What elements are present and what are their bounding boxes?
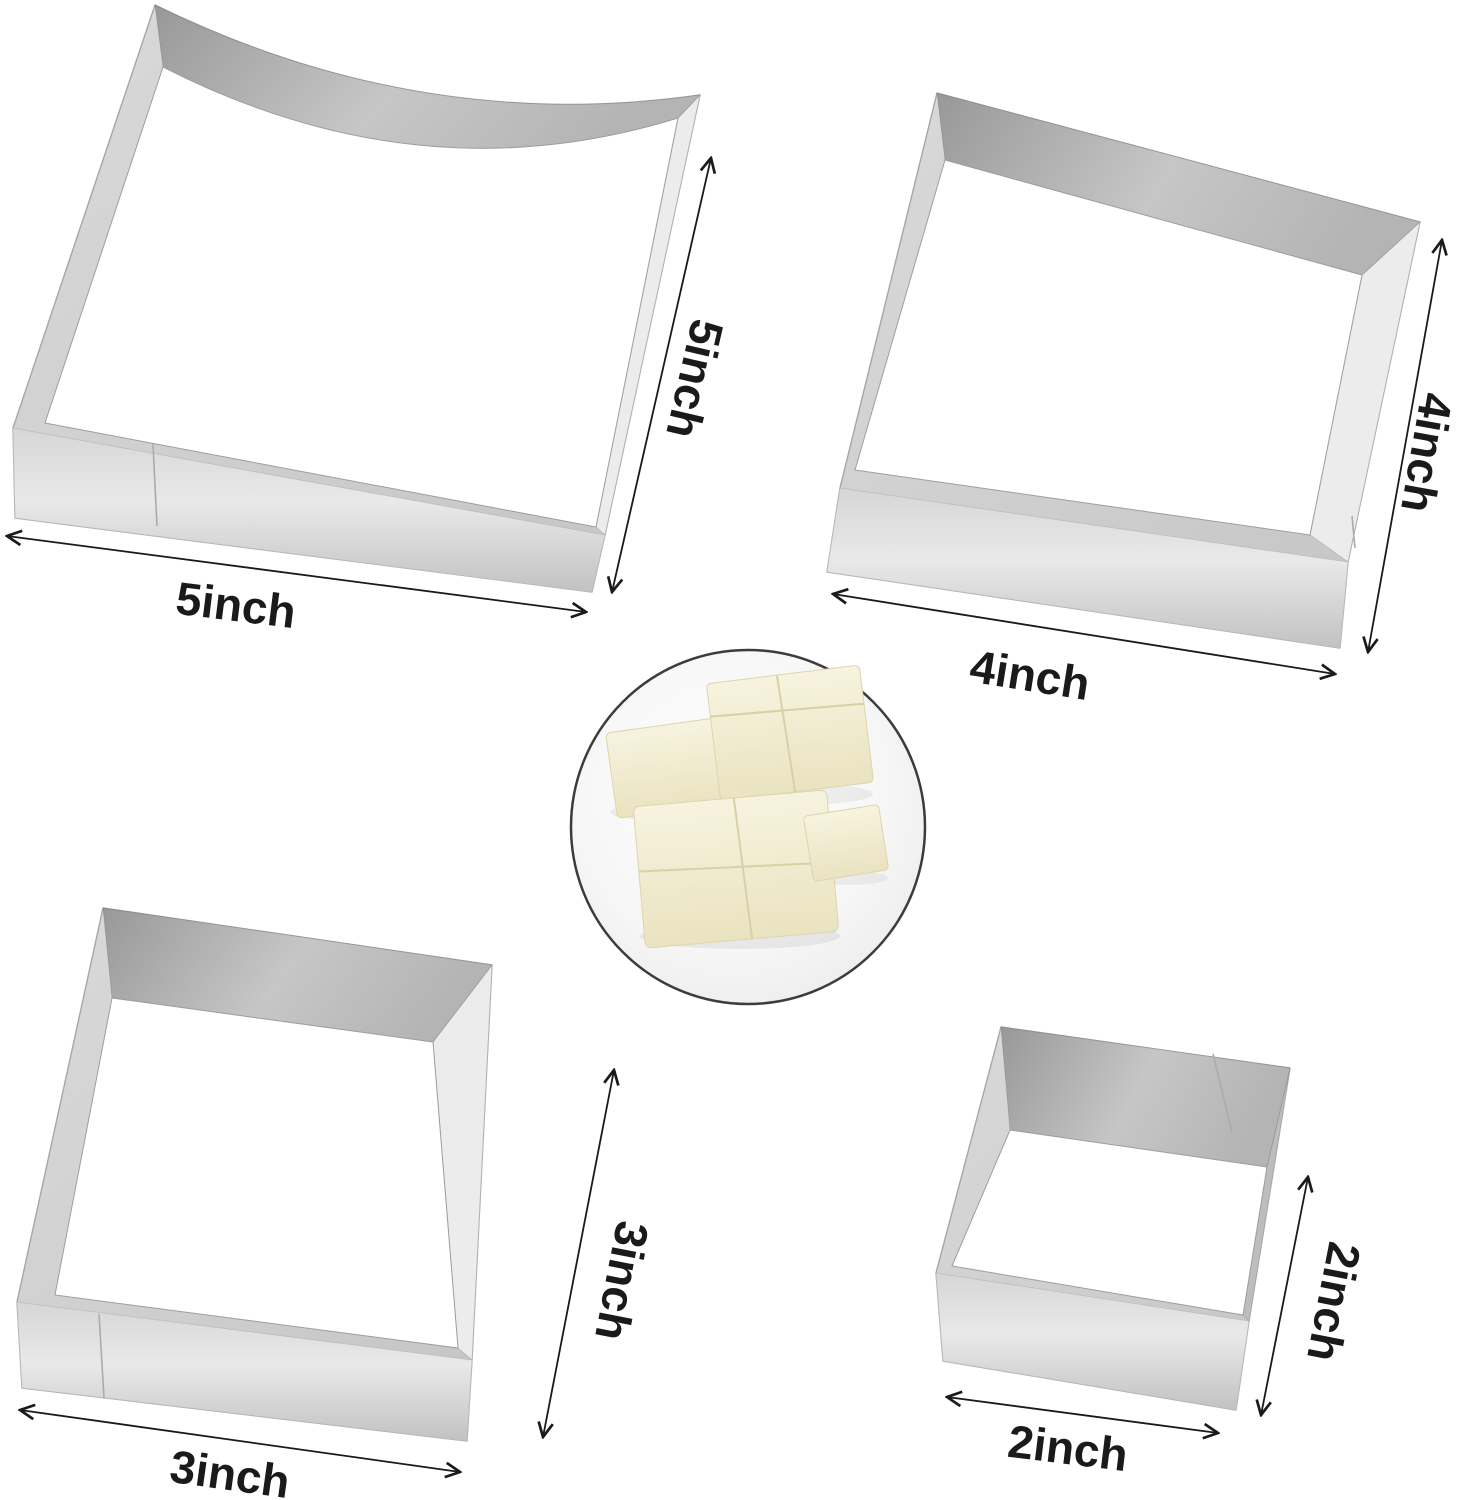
- cutter-3-inch: [17, 908, 492, 1441]
- cutter-4-inch: [827, 93, 1420, 648]
- cutter-3-inch-opening: [55, 998, 458, 1348]
- bread-slice-small-right: [803, 804, 888, 881]
- sample-photo-inset: [571, 650, 925, 1004]
- dimension-arrow-2inch-side: [1261, 1177, 1308, 1415]
- dimension-label-4inch-width: 4inch: [967, 640, 1094, 710]
- bread-slice-medium: [706, 665, 873, 801]
- dimension-label-3inch-side: 3inch: [585, 1217, 659, 1345]
- cutter-5-inch: [13, 5, 700, 592]
- dimension-label-4inch-side: 4inch: [1391, 389, 1459, 516]
- dimension-label-5inch-side: 5inch: [656, 315, 734, 444]
- cutter-2-inch: [936, 1027, 1290, 1410]
- bread-slice-large: [633, 790, 839, 948]
- dimension-label-5inch-width: 5inch: [173, 572, 299, 638]
- dimension-label-2inch-side: 2inch: [1297, 1238, 1371, 1366]
- dimension-label-2inch-width: 2inch: [1005, 1415, 1131, 1481]
- product-photo: 5inch 5inch 4inch 4inch 3inch 3inch 2inc…: [0, 0, 1459, 1500]
- product-photo-canvas: 5inch 5inch 4inch 4inch 3inch 3inch 2inc…: [0, 0, 1459, 1500]
- dimension-label-3inch-width: 3inch: [167, 1440, 293, 1500]
